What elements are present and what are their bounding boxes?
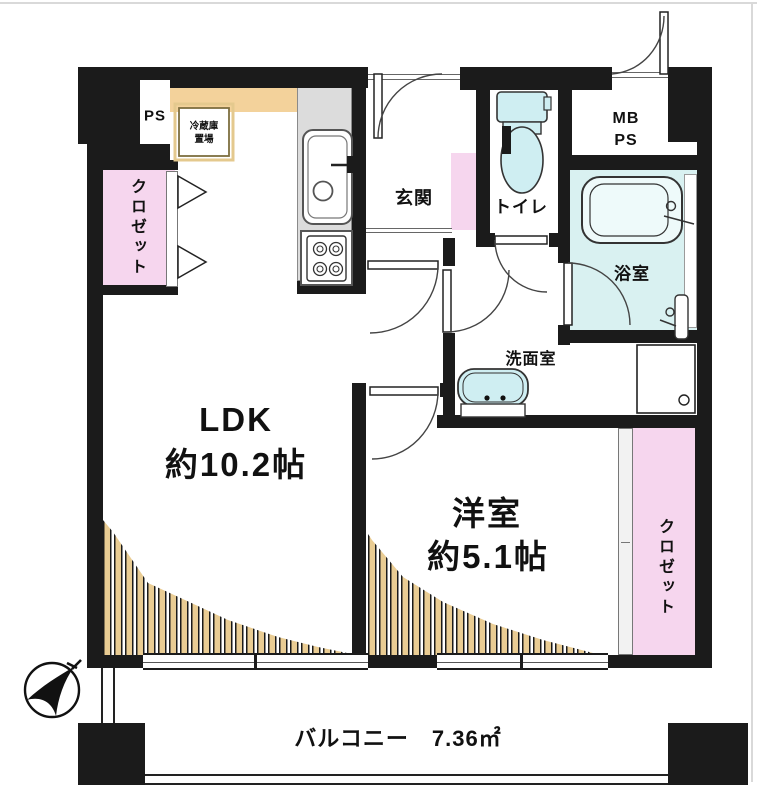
label-closet-right: クロゼット (652, 518, 676, 618)
label-closet-left: クロゼット (124, 178, 148, 278)
label-washroom: 洗面室 (505, 345, 556, 369)
label-fridge-line2: 置場 (194, 131, 213, 145)
meterbox-door (612, 12, 668, 74)
toilet-icon (497, 92, 551, 193)
label-ldk-size: 約10.2帖 (165, 438, 307, 486)
washer-pan-icon (637, 345, 695, 413)
label-western-size: 約5.1帖 (427, 530, 549, 578)
floor-plan: PS 冷蔵庫 置場 クロゼット 玄関 トイレ MB PS 浴室 洗面室 LDK … (0, 0, 757, 800)
ldk-door (368, 261, 438, 333)
label-meterbox-line2: PS (614, 132, 637, 150)
label-western-name: 洋室 (452, 487, 522, 535)
washroom-door (443, 270, 509, 332)
label-entrance: 玄関 (395, 184, 433, 210)
western-room-door (370, 387, 438, 459)
north-arrow-icon (25, 660, 81, 717)
entrance-door (374, 74, 442, 138)
vanity-sink-icon (458, 369, 528, 417)
label-meterbox-line1: MB (613, 110, 640, 128)
toilet-door (495, 236, 547, 292)
label-toilet: トイレ (494, 193, 548, 218)
bathtub-icon (582, 177, 694, 243)
label-bathroom: 浴室 (614, 260, 650, 285)
label-fridge-line1: 冷蔵庫 (190, 118, 219, 132)
fixtures-overlay (0, 0, 757, 800)
stove-icon (301, 231, 352, 285)
label-ldk-name: LDK (199, 401, 273, 439)
kitchen-sink-icon (303, 130, 354, 224)
closet-left-folding-icon (178, 176, 206, 278)
label-balcony: バルコニー 7.36㎡ (294, 721, 501, 753)
label-pipe-space: PS (144, 108, 166, 125)
shower-mixer-icon (660, 295, 688, 339)
